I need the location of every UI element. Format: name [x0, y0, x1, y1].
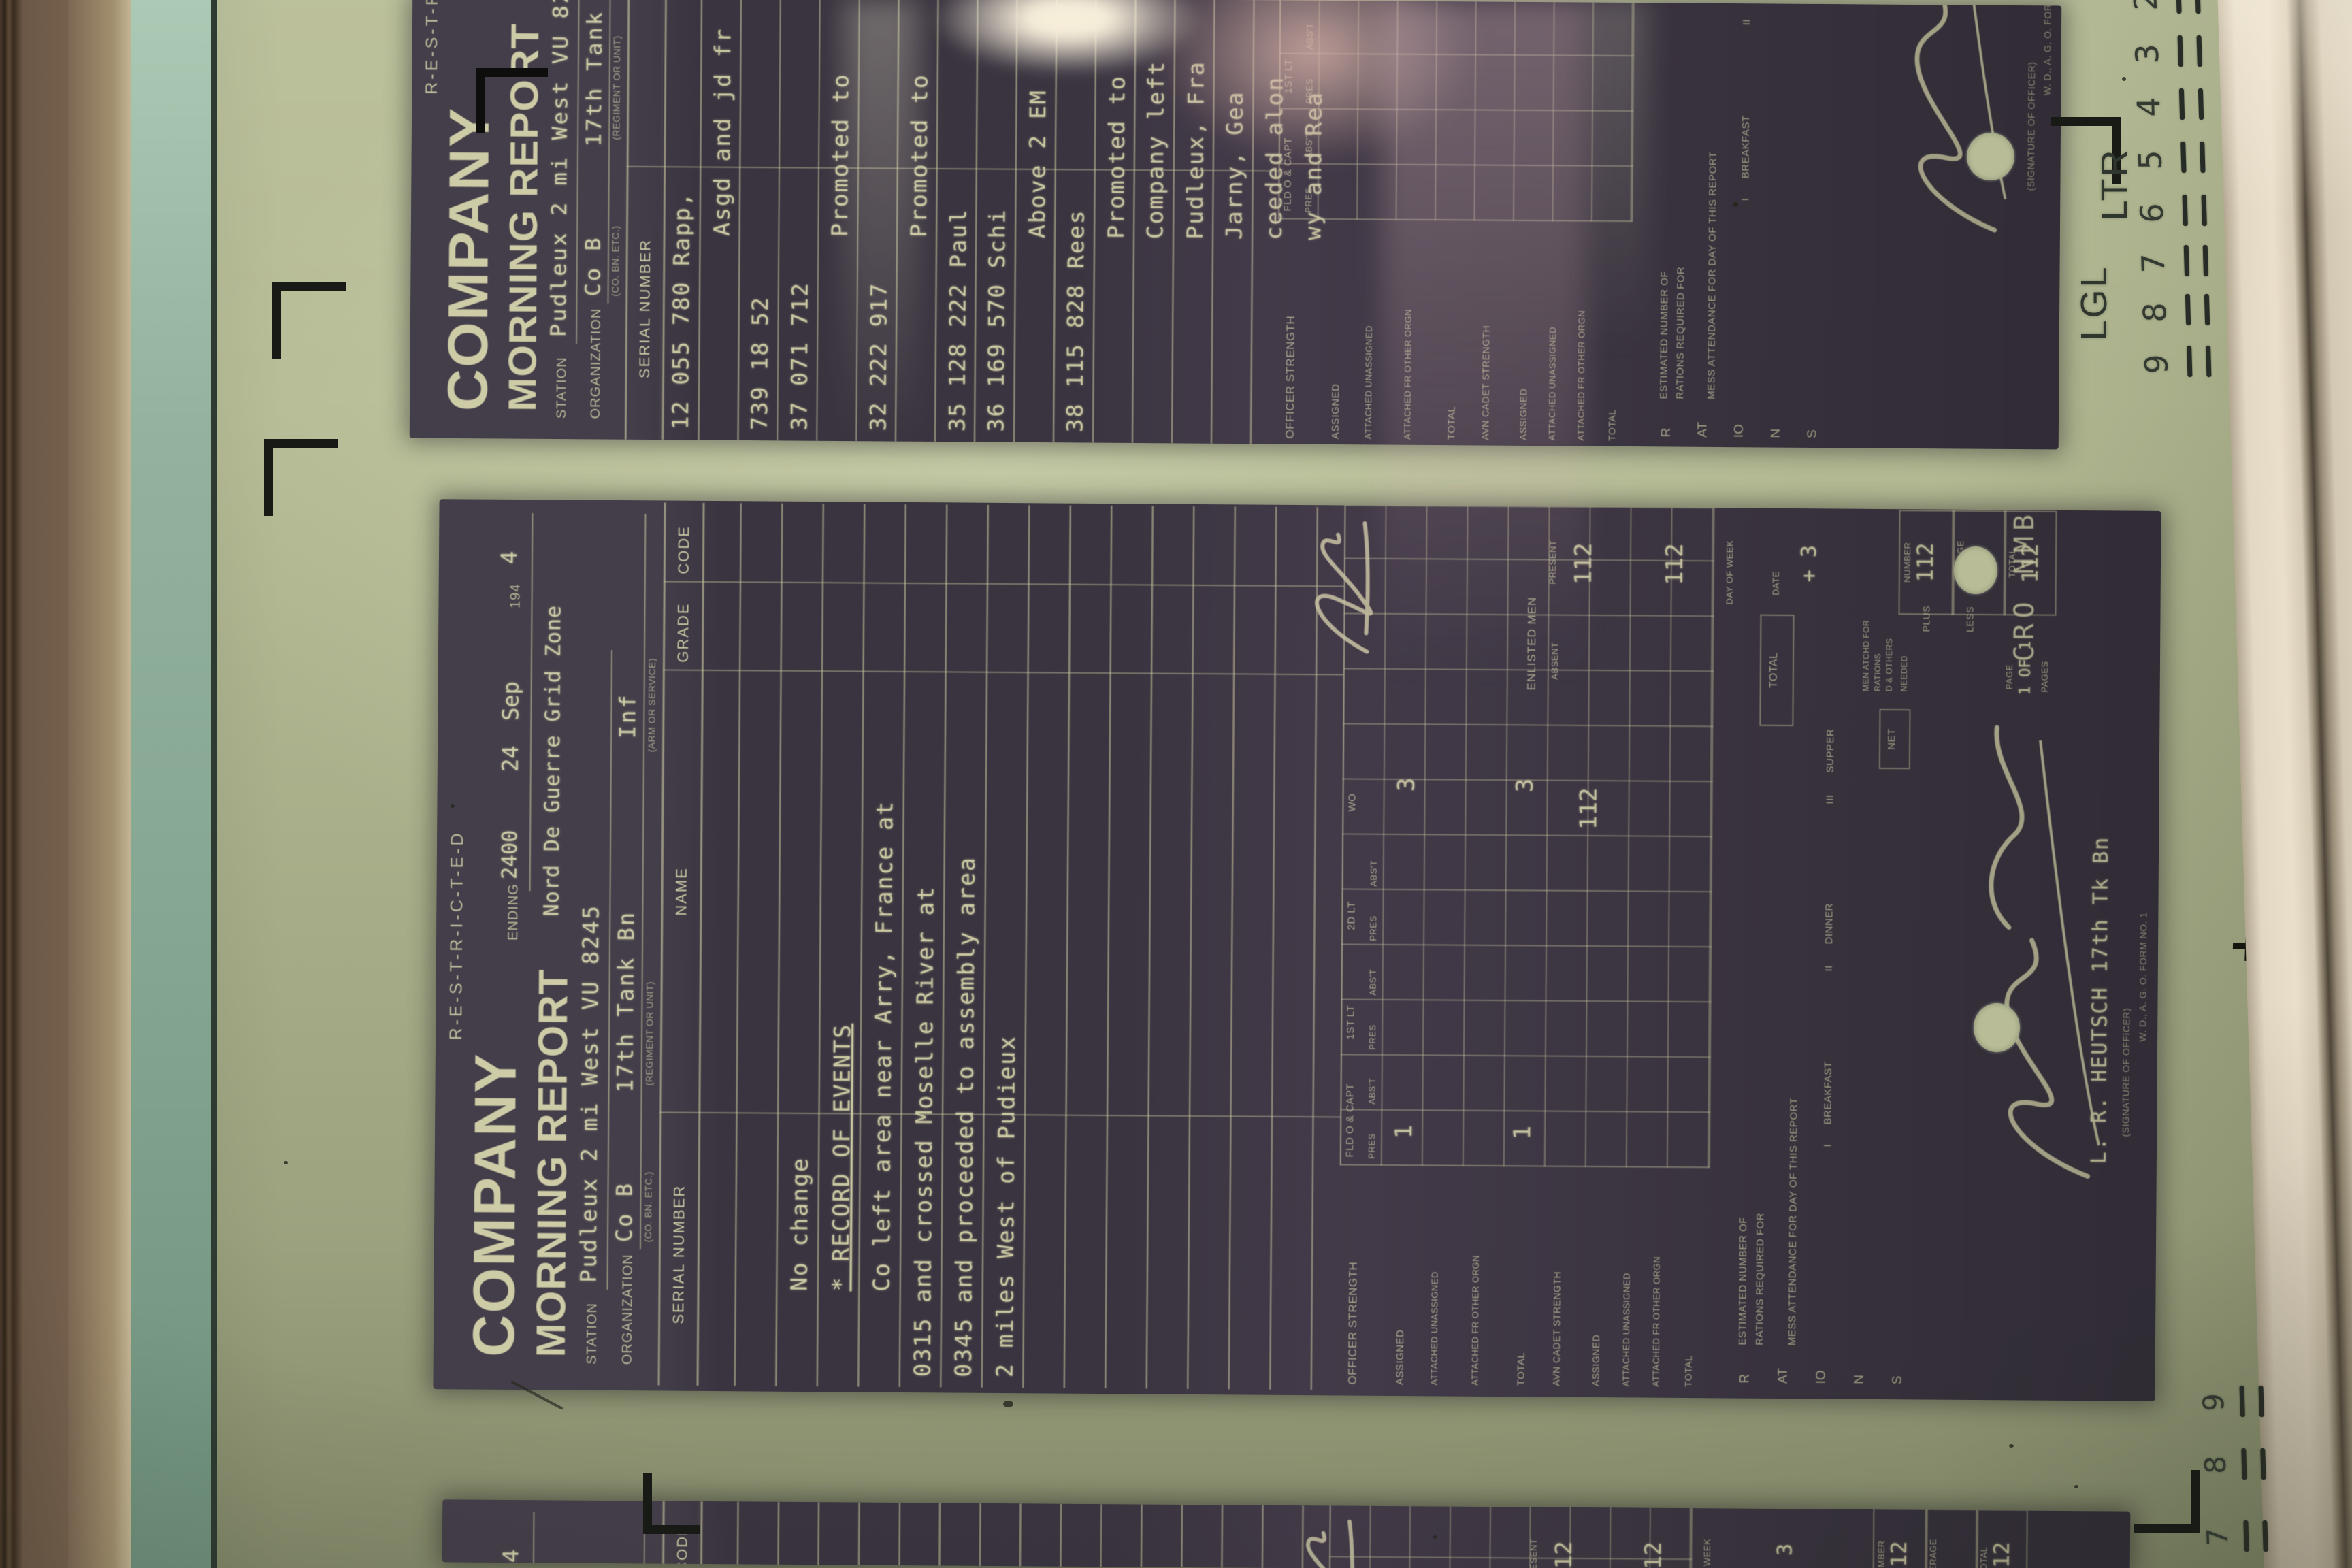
ruler-mark: 8	[2199, 1448, 2296, 1484]
company-morning-report-form: R-E-S-T-R-I-C-T-E-D COMPANY MORNING REPO…	[442, 1499, 2128, 1568]
arm-sublabel: (ARM OR SERVICE)	[646, 658, 657, 753]
attached-other-row-label: ATTACHED FR OTHER ORGN	[1402, 235, 1414, 440]
form-number: W. D., A. G. O. FORM NO. 1	[2042, 0, 2053, 95]
organization-underline	[638, 514, 647, 1249]
abst-subheader: ABS'T	[1366, 1078, 1377, 1105]
dow-label: DAY OF WEEK	[1724, 540, 1736, 605]
ruler-mark: 7	[2201, 1520, 2298, 1556]
ruler-tick	[2184, 245, 2189, 276]
report-row: Pudleux, Fra	[1182, 61, 1209, 240]
ruler-tick	[2198, 88, 2204, 120]
report-row: 0315 and crossed Moselle River at	[909, 885, 938, 1377]
men-atchd-label: MEN ATCHD FOR RATIONS	[1861, 610, 1884, 691]
report-row: No change	[785, 1157, 813, 1291]
report-row: 36 169 570 Schi	[983, 208, 1011, 431]
company-morning-report-form: R-E-S-T-R-I-C-T-E-D COMPANY MORNING REPO…	[434, 501, 2159, 1396]
ruler-label-letter: LTR	[2070, 140, 2159, 229]
ruler-number: 3	[2129, 44, 2166, 63]
attached-unassigned-row-label: ATTACHED UNASSIGNED	[1362, 235, 1375, 439]
roster-header-row: SERIAL NUMBER NAME GRADE CODE	[657, 1501, 703, 1568]
report-row: 32 222 917	[865, 282, 892, 431]
roman-1: I	[1740, 198, 1751, 201]
station-label: STATION	[585, 1303, 601, 1365]
ruler-tick	[2258, 1386, 2264, 1417]
report-row: 2 miles West of Pudieux	[991, 1035, 1020, 1377]
dow-label: DAY OF WEEK	[1701, 1539, 1713, 1568]
organization-co-value: Co B	[611, 1181, 638, 1242]
ruler-mark: 9	[2197, 1386, 2293, 1421]
station-value: Pudleux 2 mi West VU 8245	[576, 904, 604, 1283]
report-row: 739 18 52	[747, 296, 773, 430]
ruler-tick	[2243, 1520, 2249, 1552]
rations-total-box: TOTAL 112	[1975, 1509, 2028, 1568]
enlisted-total-present-value: 112	[1640, 1541, 1667, 1568]
abst-subheader: ABS'T	[1368, 860, 1379, 887]
attached-other-row-label: ATTACHED FR OTHER ORGN	[1575, 237, 1588, 441]
ruler-tick	[2241, 1448, 2247, 1480]
roman-2: II	[1823, 965, 1835, 971]
ruler-tick	[2262, 1520, 2268, 1552]
dust-speck	[1733, 202, 1738, 207]
report-row: Asgd and jd fr	[708, 27, 735, 235]
serial-number-column-header: SERIAL NUMBER	[670, 1185, 688, 1324]
year-prefix: 194	[508, 584, 523, 609]
officer-total-2dlt-pres: 3	[1512, 779, 1539, 793]
roster-table: 12 055 780 Rapp,Asgd and jd fr739 18 523…	[660, 0, 1283, 444]
ruler-tick	[2195, 0, 2200, 14]
dust-speck	[284, 1161, 288, 1164]
ruler-tick	[2187, 346, 2192, 377]
ruler-tick	[2179, 88, 2185, 120]
ruler-mark: 3	[2097, 35, 2235, 71]
mess-attendance-label: MESS ATTENDANCE FOR DAY OF THIS REPORT	[1786, 1026, 1800, 1345]
microfilm-reader-photo: R-E-S-T-R-I-C-T-E-D COMPANY MORNING REPO…	[0, 0, 2352, 1568]
pres-subheader: PRES	[1304, 78, 1316, 104]
attached-unassigned-row-label: ATTACHED UNASSIGNED	[1547, 236, 1559, 440]
ruler-number: 7	[2201, 1528, 2235, 1546]
est-rations-label: RATIONS REQUIRED FOR	[1675, 267, 1687, 399]
est-rations-label: RATIONS REQUIRED FOR	[1754, 1213, 1766, 1345]
ending-label: ENDING	[506, 883, 522, 941]
enlisted-present-value: 112	[1550, 1541, 1578, 1568]
ruler-tick	[2204, 294, 2210, 325]
abst-subheader: ABS'T	[1304, 23, 1316, 50]
abst-subheader: ABS'T	[1303, 132, 1315, 159]
roman-1: I	[1822, 1144, 1833, 1147]
total-box: TOTAL	[1759, 615, 1794, 726]
roster-table: No change* RECORD OF EVENTSCo left area …	[695, 503, 1345, 1390]
est-rations-label: ESTIMATED NUMBER OF	[1737, 1217, 1749, 1345]
year-digit-value: 4	[498, 1550, 523, 1563]
total-row-label: TOTAL	[1516, 1352, 1527, 1386]
form-title: MORNING REPORT	[500, 23, 547, 412]
officer-strength-label: OFFICER STRENGTH	[1347, 1181, 1360, 1385]
grid-zone-value: Nord De Guerre Grid Zone	[540, 605, 566, 917]
grade-column-header: GRADE	[674, 602, 693, 662]
strength-grid	[1278, 0, 1637, 222]
org-sublabel: (CO. BN. ETC.)	[610, 225, 621, 296]
date-label: DATE	[1770, 571, 1782, 595]
form-title: COMPANY	[436, 107, 502, 412]
enlisted-present-value: 112	[1570, 542, 1597, 585]
attached-other-row-label: ATTACHED FR OTHER ORGN	[1650, 1183, 1663, 1387]
total-row-label: TOTAL	[1607, 409, 1618, 440]
ruler-tick	[2260, 1448, 2266, 1480]
number-box-label: NUMBER	[1901, 511, 1912, 613]
supper-label: SUPPER	[1825, 729, 1836, 773]
ending-month-value: Sep	[497, 681, 523, 721]
ruler-number: 9	[2197, 1393, 2231, 1411]
ruler-number: 7	[2135, 253, 2172, 273]
officer-assigned-fld-pres: 1	[1390, 1124, 1418, 1139]
report-row: Promoted to	[1103, 75, 1130, 239]
ruler-tick	[2176, 0, 2181, 14]
2d-lt-header: 2D LT	[1345, 848, 1358, 930]
assigned-row-label: ASSIGNED	[1394, 1329, 1407, 1385]
number-box-label: NUMBER	[1876, 1509, 1886, 1568]
unit-sublabel: (REGIMENT OR UNIT)	[611, 35, 622, 140]
ruler-tick	[2178, 35, 2183, 67]
pres-subheader: PRES	[1303, 187, 1315, 213]
report-row: Company left	[1143, 61, 1169, 240]
page-label: PAGE	[2004, 664, 2015, 689]
report-row: Promoted to	[827, 73, 853, 237]
1st-lt-header: 1ST LT	[1345, 958, 1357, 1039]
report-row: Promoted to	[906, 73, 932, 238]
enlisted-men-header: ENLISTED MEN	[1526, 597, 1538, 691]
report-row: 35 128 222 Paul	[944, 208, 971, 431]
avn-cadet-label: AVN CADET STRENGTH	[1480, 236, 1492, 440]
average-box-label: AVERAGE	[1928, 1510, 1939, 1568]
ruler-number: 2	[2127, 0, 2164, 11]
attached-unassigned-row-label: ATTACHED UNASSIGNED	[1620, 1182, 1633, 1386]
net-box: NET	[1879, 709, 1911, 769]
dust-speck	[1003, 1401, 1013, 1407]
rations-number-value: 112	[1912, 511, 1938, 613]
ruler-mark: 2	[2095, 0, 2233, 18]
organization-unit-value: 17th Tank Bn	[581, 0, 607, 147]
total-row-label: TOTAL	[1446, 406, 1458, 440]
ending-underline	[528, 513, 534, 891]
screen-edge-band	[131, 0, 217, 1568]
punch-hole	[1967, 133, 2014, 180]
present-subheader: PRESENT	[1547, 540, 1558, 585]
morning-report-frame-top: R-E-S-T-R-I-C-T-E-D COMPANY MORNING REPO…	[410, 0, 2061, 449]
roster-table: No change* RECORD OF EVENTSCo left area …	[693, 1501, 1330, 1568]
ruler-tick	[2201, 195, 2206, 226]
signature-sublabel: (SIGNATURE OF OFFICER)	[2025, 61, 2037, 191]
ruler-mark: 9	[2106, 346, 2244, 381]
rations-number-value: 112	[1886, 1509, 1912, 1568]
form-title: COMPANY	[461, 1052, 530, 1357]
rations-side-letters: RATIONS	[1727, 1365, 1917, 1384]
total-box-label: TOTAL	[1767, 616, 1780, 725]
registration-mark-icon	[272, 282, 346, 359]
reader-frame-left-outer	[0, 0, 68, 1568]
year-digit-value: 4	[496, 551, 522, 565]
report-row: Co left area near Arry, France at	[868, 800, 898, 1292]
org-sublabel: (CO. BN. ETC.)	[642, 1171, 654, 1242]
ruler-number: 8	[2136, 302, 2174, 322]
roman-2: II	[1741, 19, 1752, 25]
officer-total-fld-pres: 1	[1509, 1126, 1536, 1140]
fld-capt-header: FLD O & CAPT	[1282, 116, 1294, 211]
total-annotation: + 3	[1797, 545, 1821, 582]
dinner-label: DINNER	[1823, 903, 1835, 945]
number-box: NUMBER 112	[1872, 1508, 1927, 1568]
1st-lt-header: 1ST LT	[1283, 12, 1294, 93]
number-box: NUMBER 112	[1898, 510, 1955, 615]
ruler-tick	[2239, 1386, 2244, 1417]
ruler-number: 4	[2130, 97, 2168, 116]
est-rations-label: ESTIMATED NUMBER OF	[1659, 271, 1671, 399]
organization-label: ORGANIZATION	[620, 1254, 636, 1365]
unit-sublabel: (REGIMENT OR UNIT)	[644, 981, 655, 1086]
code-column-header: CODE	[674, 1524, 691, 1568]
station-label: STATION	[555, 357, 570, 419]
ending-underline	[529, 1512, 535, 1568]
signature-typed-name: L. R. HEUTSCH 17th Tk Bn	[2087, 836, 2113, 1164]
pres-subheader: PRES	[1366, 1133, 1377, 1159]
report-row: * RECORD OF EVENTS	[827, 1024, 855, 1292]
pres-subheader: PRES	[1367, 915, 1379, 941]
ruler-tick	[2197, 35, 2202, 67]
report-row: 37 071 712	[786, 282, 813, 431]
breakfast-label: BREAKFAST	[1740, 115, 1752, 178]
report-row: Jarny, Gea	[1222, 91, 1248, 240]
rations-side-letters: RATIONS	[1648, 419, 1831, 438]
station-value: Pudleux 2 mi West VU 8245	[546, 0, 573, 337]
punch-hole	[1974, 1003, 2020, 1052]
form-number: W. D., A. G. O. FORM NO. 1	[2137, 912, 2149, 1041]
dust-speck	[451, 804, 455, 808]
security-classification: R-E-S-T-R-I-C-T-E-D	[446, 830, 468, 1040]
name-column-header: NAME	[672, 867, 690, 916]
registration-mark-icon	[264, 439, 338, 516]
attached-unassigned-row-label: ATTACHED UNASSIGNED	[1428, 1181, 1441, 1385]
men-atchd-label3: NEEDED	[1899, 655, 1910, 691]
report-row: 38 115 828 Rees	[1062, 209, 1090, 432]
reader-frame-left-inner	[68, 0, 131, 1568]
ruler-bottom: 9876	[2197, 1375, 2298, 1568]
organization-arm-value: Inf	[615, 693, 640, 738]
morning-report-frame-middle: R-E-S-T-R-I-C-T-E-D COMPANY MORNING REPO…	[433, 499, 2161, 1401]
punch-hole	[1954, 546, 1997, 594]
mess-attendance-label: MESS ATTENDANCE FOR DAY OF THIS REPORT	[1706, 80, 1720, 399]
present-subheader: PRESENT	[1528, 1539, 1539, 1568]
total-annotation: + 3	[1774, 1543, 1797, 1568]
ruler-tick	[2182, 195, 2187, 226]
film-stamp: CRO NMB	[2009, 509, 2040, 662]
dust-speck	[2009, 1444, 2014, 1448]
security-classification: R-E-S-T-R-I-C-T-E-D	[423, 0, 443, 95]
form-title: MORNING REPORT	[527, 968, 577, 1357]
rations-total-label: TOTAL	[1978, 1510, 1989, 1568]
fld-capt-header: FLD O & CAPT	[1344, 1062, 1356, 1157]
registration-mark-icon	[2134, 1470, 2200, 1533]
wo-header: WO	[1346, 771, 1358, 812]
dust-speck	[2074, 1485, 2078, 1488]
ruler-number: 8	[2198, 1456, 2232, 1474]
enlisted-present-value: 112	[1575, 787, 1602, 830]
morning-report-frame-bottom: R-E-S-T-R-I-C-T-E-D COMPANY MORNING REPO…	[442, 1499, 2131, 1568]
report-row: Above 2 EM	[1024, 89, 1051, 238]
men-atchd-label2: D & OTHERS	[1884, 638, 1896, 691]
signature-sublabel: (SIGNATURE OF OFFICER)	[2120, 1008, 2131, 1137]
ruler-mark: 4	[2099, 88, 2236, 124]
ending-time-value: 2400	[498, 830, 523, 879]
ruler-number: 9	[2138, 354, 2175, 374]
roman-3: III	[1825, 794, 1836, 804]
organization-unit-value: 17th Tank Bn	[612, 911, 640, 1092]
rations-total-value: 112	[1989, 1510, 2014, 1568]
pages-label: PAGES	[2039, 661, 2051, 692]
attached-other-row-label: ATTACHED FR OTHER ORGN	[1469, 1181, 1482, 1386]
company-morning-report-form: R-E-S-T-R-I-C-T-E-D COMPANY MORNING REPO…	[410, 0, 2061, 449]
ruler-tick	[2200, 142, 2205, 173]
assigned-row-label: ASSIGNED	[1590, 1335, 1603, 1386]
ruler-tick	[2206, 346, 2211, 377]
report-row: 12 055 780 Rapp,	[668, 191, 695, 429]
serial-number-column-header: SERIAL NUMBER	[636, 239, 654, 378]
assigned-row-label: ASSIGNED	[1518, 389, 1529, 440]
average-box: AVERAGE	[1925, 1509, 1978, 1568]
ruler-tick	[2203, 245, 2208, 276]
abst-subheader: ABS'T	[1367, 969, 1379, 996]
ruler-label-legal: LGL	[2050, 259, 2138, 347]
report-row: 0345 and proceeded to assembly area	[950, 856, 980, 1377]
enlisted-total-present-value: 112	[1661, 543, 1688, 585]
signature-scrawl-icon	[1861, 0, 2028, 249]
officer-assigned-2dlt-pres: 3	[1393, 777, 1420, 791]
ending-day-value: 24	[497, 745, 523, 772]
ruler-tick	[2185, 294, 2191, 325]
avn-cadet-label: AVN CADET STRENGTH	[1551, 1182, 1564, 1386]
dust-speck	[1433, 1535, 1437, 1539]
net-box-label: NET	[1886, 710, 1898, 768]
total-row-label: TOTAL	[1683, 1356, 1695, 1387]
organization-underline	[638, 1512, 645, 1568]
pres-subheader: PRES	[1367, 1024, 1378, 1050]
organization-co-value: Co B	[580, 235, 605, 296]
code-column-header: CODE	[675, 525, 693, 574]
breakfast-label: BREAKFAST	[1822, 1062, 1834, 1125]
ruler-tick	[2180, 142, 2186, 173]
absent-subheader: ABSENT	[1549, 642, 1561, 680]
officer-strength-label: OFFICER STRENGTH	[1284, 235, 1296, 439]
assigned-row-label: ASSIGNED	[1330, 383, 1341, 439]
organization-label: ORGANIZATION	[588, 308, 604, 419]
